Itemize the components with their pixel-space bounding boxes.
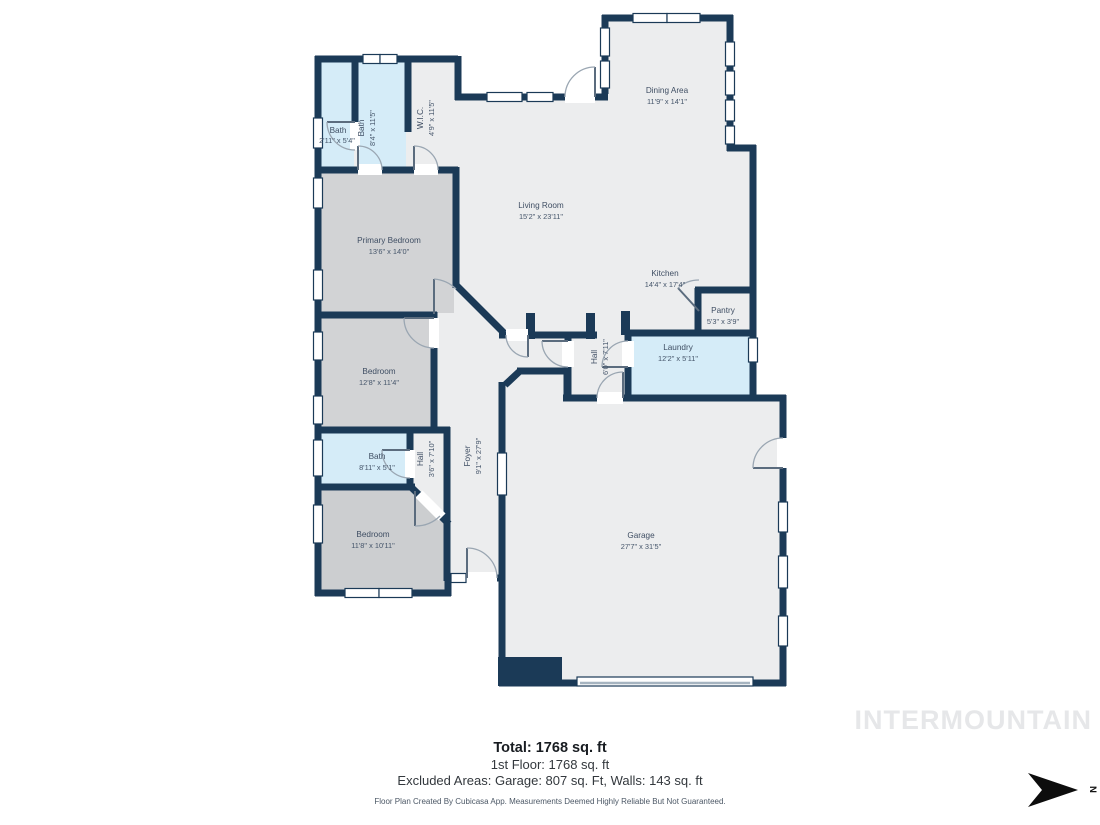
dims-kitchen: 14'4" x 17'4" [645,280,686,289]
window [667,14,700,23]
window [726,126,735,144]
room-bath-small [321,62,354,168]
label-bath-lower: Bath [369,452,386,461]
window [451,574,466,583]
label-garage: Garage [627,531,655,540]
label-hall-upper: Hall [590,350,599,364]
garage-notch [498,657,562,686]
label-bedroom-middle: Bedroom [362,367,395,376]
dims-bath-main: 8'4" x 11'5" [368,110,377,146]
dims-bath-small: 2'11" x 5'4" [319,136,355,145]
window [314,505,323,543]
watermark: INTERMOUNTAIN [855,705,1092,735]
window [345,589,379,598]
disclaimer: Floor Plan Created By Cubicasa App. Meas… [374,797,725,806]
label-foyer: Foyer [463,445,472,466]
window [380,55,397,64]
dims-foyer: 9'1" x 27'9" [474,437,483,474]
window [726,100,735,121]
window [779,616,788,646]
dims-garage: 27'7" x 31'5" [621,542,662,551]
dims-pantry: 5'3" x 3'9" [707,317,740,326]
dims-bath-lower: 8'11" x 5'1" [359,463,395,472]
window [601,61,610,88]
window [633,14,667,23]
window [779,502,788,532]
window [726,71,735,95]
summary-total: Total: 1768 sq. ft [493,740,607,756]
north-arrow: N [1028,773,1098,807]
window [749,338,758,362]
window [314,178,323,208]
window [527,93,553,102]
label-pantry: Pantry [711,306,736,315]
dims-bedroom-middle: 12'8" x 11'4" [359,378,399,387]
label-bath-main: Bath [357,119,366,136]
north-label: N [1087,786,1098,793]
window [363,55,380,64]
opening [498,453,507,495]
dims-living-room: 15'2" x 23'11" [519,212,563,221]
summary: Total: 1768 sq. ft 1st Floor: 1768 sq. f… [374,740,725,806]
wall-stub [621,311,630,335]
room-bath-main [357,62,406,168]
window [726,42,735,66]
floor-plan: Bath 2'11" x 5'4" Bath 8'4" x 11'5" W.I.… [0,0,1100,825]
window [314,270,323,300]
label-hall-lower: Hall [416,452,425,466]
wall-stub [586,313,595,339]
summary-excluded: Excluded Areas: Garage: 807 sq. Ft, Wall… [397,773,703,788]
dims-bedroom-bottom: 11'8" x 10'11" [351,541,395,550]
window [379,589,412,598]
summary-first-floor: 1st Floor: 1768 sq. ft [491,757,610,772]
window [314,440,323,476]
window [487,93,522,102]
label-laundry: Laundry [663,343,693,352]
window [779,556,788,588]
window [314,396,323,424]
dims-laundry: 12'2" x 5'11" [658,354,698,363]
label-dining-area: Dining Area [646,86,689,95]
dims-hall-lower: 3'6" x 7'10" [427,440,436,477]
label-wic: W.I.C. [416,107,425,129]
label-bath-small: Bath [330,126,347,135]
dims-hall-upper: 6'0" x 7'11" [601,339,610,375]
room-bath-lower [321,433,408,485]
label-living-room: Living Room [518,201,564,210]
dims-dining-area: 11'9" x 14'1" [647,97,687,106]
label-kitchen: Kitchen [651,269,679,278]
label-bedroom-bottom: Bedroom [356,530,389,539]
dims-wic: 4'9" x 11'5" [427,100,436,136]
garage-door [577,677,753,686]
window [314,332,323,360]
dims-primary-bedroom: 13'6" x 14'0" [369,247,410,256]
north-arrow-icon [1028,773,1078,807]
label-primary-bedroom: Primary Bedroom [357,236,421,245]
window [601,28,610,56]
